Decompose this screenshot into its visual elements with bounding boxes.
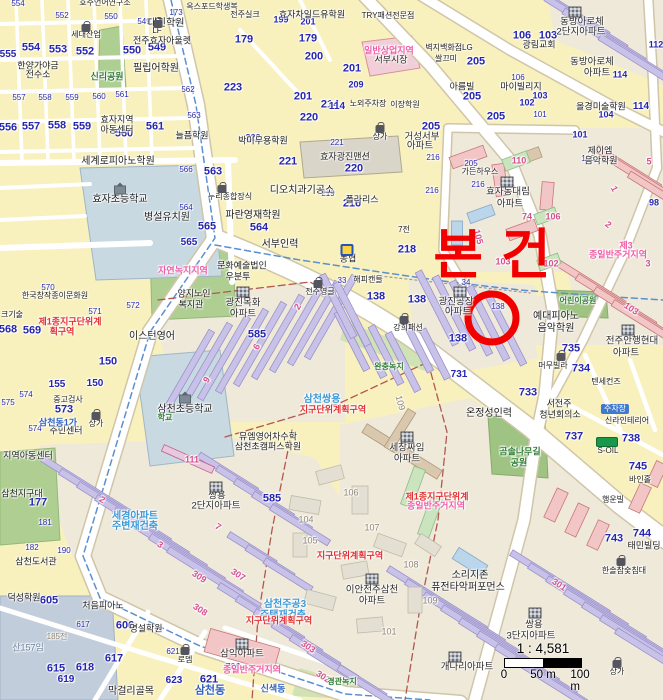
label-num: 223 (224, 83, 242, 94)
label-dong2: 삼천쌍용 (304, 395, 341, 405)
label-num: 738 (622, 434, 640, 445)
label-num: 209 (348, 81, 363, 90)
label-poi: 우분투 (226, 273, 251, 282)
label-park: 곰솔나무길 (499, 448, 540, 457)
label-apt: 광진목화 (226, 298, 261, 308)
label-poi: 서전주 (547, 400, 572, 409)
scale-ratio-text: 1 : 4,581 (501, 641, 585, 656)
label-num: 221 (279, 157, 297, 168)
scale-bar (504, 658, 582, 668)
label-nums: 561 (115, 91, 128, 99)
label-poi: 퓨전타악퍼포먼스 (431, 583, 505, 593)
label-zpink: 자연녹지지역 (158, 267, 208, 276)
label-num: 101 (572, 131, 587, 140)
label-nums: 554 (11, 0, 24, 8)
shop-icon (613, 660, 622, 668)
label-num: 102 (519, 99, 534, 108)
label-apt: 이안전주삼천 (346, 585, 398, 595)
label-poi: 행운빌 (602, 496, 624, 504)
label-pnum: 106 (545, 213, 560, 222)
label-park: 완충녹지 (374, 363, 403, 371)
label-poi: 바인홀 (629, 476, 651, 484)
soil-gas-icon (596, 437, 618, 447)
label-poi: 지역아동센터 (3, 452, 53, 461)
label-num: 605 (40, 596, 58, 607)
label-pnum: 1 (609, 185, 619, 194)
label-dong: 삼천동1가 (39, 419, 77, 428)
label-apt: 동방아로체 (570, 57, 614, 67)
label-poi: 효자지역 (100, 116, 133, 125)
shop-icon (218, 185, 227, 193)
label-zpink: 종일반주거지역 (589, 251, 647, 260)
label-num: 559 (73, 122, 91, 133)
label-zred: 지구단위계획구역 (317, 552, 383, 561)
label-num: 114 (329, 102, 345, 112)
label-nums: 559 (65, 94, 78, 102)
label-apt: 아파트 (359, 596, 385, 606)
label-apt: 3단지아파트 (507, 631, 556, 641)
label-poi: 노외주차장 (350, 100, 387, 108)
label-num: 569 (23, 326, 41, 337)
label-zpink: 종일반주거지역 (223, 666, 281, 675)
label-num: 205 (487, 112, 505, 123)
label-poi: 제이엠 (588, 147, 613, 156)
label-num: 218 (398, 245, 416, 256)
label-apt: 아파트 (613, 348, 639, 358)
nonghyup-icon (341, 244, 354, 256)
scale-tick-50: 50 m (530, 669, 556, 681)
label-apt: 전주안행현대 (606, 336, 658, 346)
label-park: 학교 (158, 414, 173, 422)
label-nums: 566 (179, 166, 192, 174)
label-poi: 크기술 (1, 311, 23, 319)
label-poi: 전주효자아울렛 (133, 37, 191, 46)
label-num: 177 (29, 498, 47, 509)
school-icon (179, 395, 191, 404)
label-nums: 181 (38, 519, 51, 527)
label-poi: 한솔참숯침대 (602, 567, 646, 575)
label-poi: 텐세컨즈 (591, 378, 620, 386)
label-num: 220 (345, 164, 363, 175)
label-nums: 575 (1, 399, 14, 407)
label-pnum: 308 (191, 602, 209, 618)
label-num: 737 (565, 432, 583, 443)
label-num: 557 (22, 122, 40, 133)
label-num: 220 (300, 113, 318, 124)
label-apt: 아파트 (394, 454, 420, 464)
label-apt: 2단지아파트 (192, 501, 241, 511)
label-park: 어린이공원 (560, 297, 597, 305)
apartment-icon (622, 325, 635, 336)
label-mt: 산157임 (12, 644, 44, 653)
label-num: 98 (649, 199, 659, 208)
label-nums: 550 (104, 13, 117, 21)
label-num: 179 (299, 34, 317, 45)
label-zred: 지구단위계획구역 (246, 617, 312, 626)
label-poi: 호주언어연구소 (79, 0, 131, 7)
label-poi: 뮤엠영어차수학 (239, 433, 297, 442)
label-nums: 552 (55, 12, 68, 20)
label-num: 743 (605, 534, 623, 545)
label-nums: 574 (19, 391, 32, 399)
label-num: 585 (263, 494, 281, 505)
label-num: 563 (204, 167, 222, 178)
label-poi: 서부인력 (262, 240, 299, 250)
label-zred: 제1종지구단위계 (406, 493, 469, 502)
label-dong2: 삼천주공3 (264, 600, 306, 610)
label-poi: 양지노인 (177, 290, 210, 299)
label-poi: 이스턴영어 (129, 332, 175, 342)
label-num: 550 (123, 46, 141, 57)
shop-icon (92, 412, 101, 420)
label-poi: 효자차일드유학원 (279, 11, 345, 20)
label-nums: 221 (330, 139, 343, 147)
label-nums: 138 (491, 303, 504, 311)
label-num: 114 (613, 71, 628, 80)
label-pnum: 2 (97, 495, 106, 505)
label-num: 585 (248, 330, 266, 341)
label-poi: 벽지백화점LG (425, 44, 472, 52)
label-pnum: 2 (603, 220, 613, 230)
label-poi: S-OIL (598, 447, 619, 455)
label-poi: 전주실크 (230, 11, 259, 19)
label-dong2: 주변재건축 (112, 522, 158, 532)
label-num: 150 (87, 379, 104, 389)
label-pnum: 74 (522, 213, 532, 222)
label-zred: 지구단위계획구역 (300, 406, 366, 415)
label-nums: 572 (126, 302, 139, 310)
label-gnum: 104 (298, 516, 313, 525)
label-poi: 온정성인력 (466, 409, 512, 419)
shop-icon (557, 353, 566, 361)
label-poi: 신라인테리어 (605, 417, 649, 425)
label-zred: 제1종지구단위계 (39, 318, 102, 327)
label-pnum: 7 (213, 522, 222, 532)
label-gnum: 101 (381, 628, 396, 637)
label-apt: 아파트 (407, 141, 433, 151)
label-gnum: 109 (422, 597, 437, 606)
label-nums: 33 (338, 277, 347, 285)
label-num: 555 (0, 50, 16, 60)
label-dong: 신색동 (261, 685, 286, 694)
label-chip: 주차장 (601, 404, 629, 414)
label-num: 155 (49, 380, 66, 390)
label-gnum: 108 (403, 561, 418, 570)
apartment-icon (210, 482, 223, 493)
label-poi: 덕성학원 (7, 594, 40, 603)
label-poi: 예대피아노 (533, 312, 579, 322)
label-poi: 전수소 (26, 71, 51, 80)
label-park: 공원 (511, 459, 528, 468)
label-nums: 216 (425, 187, 438, 195)
label-nums: 216 (471, 181, 484, 189)
label-poi: 필립어학원 (133, 64, 179, 74)
label-poi: 음악학원 (538, 324, 575, 334)
label-poi: 청년회의소 (539, 411, 580, 420)
label-apt: 삼익아파트 (220, 649, 264, 659)
label-park: 신리공원 (90, 73, 123, 82)
subject-marker-text: 본건 (415, 228, 568, 282)
label-num: 623 (166, 676, 183, 686)
label-zpink: 종일반주거지역 (407, 502, 465, 511)
label-apt: 효자동대림 (486, 187, 530, 197)
label-nums: 564 (179, 204, 192, 212)
label-poi: LF (152, 27, 161, 35)
apartment-icon (237, 287, 250, 298)
label-gnum: 105 (302, 537, 317, 546)
label-poi: 세계로피아노학원 (81, 157, 155, 167)
label-pnum: 303 (299, 639, 317, 655)
label-poi: 복지관 (179, 301, 204, 310)
label-pnum: 9 (202, 376, 212, 385)
label-pnum: 3 (155, 540, 164, 550)
label-poi: 누리종합장식 (208, 193, 252, 201)
label-park: 경관녹지 (327, 678, 356, 686)
label-num: 565 (181, 238, 198, 248)
label-poi: 병설유치원 (144, 213, 190, 223)
label-poi: 아름빌 (450, 83, 475, 92)
label-num: 617 (105, 654, 123, 665)
shop-icon (82, 24, 91, 32)
label-num: 200 (305, 52, 323, 63)
label-poi: 처음피아노 (82, 602, 123, 611)
label-poi: 태민빌딩 (627, 542, 660, 551)
label-gnum: 109 (394, 395, 407, 412)
label-num: 619 (58, 675, 75, 685)
label-apt: 개나리아파트 (441, 662, 493, 672)
label-num: 733 (519, 388, 537, 399)
apartment-icon (569, 7, 582, 18)
label-num: 205 (467, 57, 485, 68)
map-labels: 5545535525505495555565575585595605615635… (0, 0, 663, 700)
label-poi: 올경미술학원 (576, 103, 626, 112)
shop-icon (181, 647, 190, 655)
label-num: 615 (47, 664, 65, 675)
label-pnum: 103 (622, 301, 640, 317)
label-pnum: 5 (646, 158, 651, 167)
label-poi: 한국창작종이문화원 (22, 292, 88, 300)
label-poi: 막걸리골목 (108, 687, 154, 697)
label-poi: 폴라리스 (345, 196, 378, 205)
label-poi: 파란영재학원 (225, 211, 280, 221)
label-num: 745 (629, 462, 647, 473)
label-poi: 상가 (610, 668, 625, 676)
shop-icon (617, 558, 626, 566)
label-poi: 중고검사 (53, 396, 82, 404)
label-poi: 음악학원 (584, 157, 617, 166)
label-poi: 효자초등학교 (92, 195, 147, 205)
label-num: 103 (532, 92, 547, 101)
label-poi: 소리지존 (452, 571, 489, 581)
label-zpink: 일반상업지역 (364, 47, 414, 56)
label-num: 201 (294, 92, 312, 103)
apartment-icon (449, 652, 462, 663)
label-poi: 쌀끄미 (435, 55, 457, 63)
label-dong: 삼천동 (195, 686, 225, 697)
label-pnum: 307 (229, 567, 247, 583)
label-pnum: 111 (185, 456, 199, 465)
label-apt: 아파트 (230, 309, 256, 319)
apartment-icon (501, 177, 514, 188)
label-poi: 삼천초캠퍼스학원 (235, 443, 301, 452)
label-apt: 세창짜임 (390, 443, 425, 453)
apartment-icon (529, 608, 542, 619)
label-poi: 해피캔들 (353, 276, 382, 284)
map-scale: 1 : 4,581 0 50 m 100 m (497, 641, 597, 683)
label-poi: 상가 (89, 420, 104, 428)
label-num: 558 (48, 121, 66, 132)
label-poi: 주민센터 (49, 427, 82, 436)
label-poi: 이장학원 (390, 101, 419, 109)
label-nums: 562 (181, 86, 194, 94)
label-num: 179 (235, 35, 253, 46)
label-poi: 명설학원 (129, 625, 162, 634)
label-num: 138 (408, 295, 426, 306)
label-pnum: 309 (190, 569, 208, 585)
label-num: 552 (76, 47, 94, 58)
label-apt: 아파트 (445, 307, 471, 317)
label-num: 734 (572, 364, 590, 375)
label-poi: 늘픔학원 (175, 132, 208, 141)
label-gnum: 106 (343, 489, 358, 498)
label-poi: 문화예술법인 (217, 262, 267, 271)
label-num: 114 (633, 102, 649, 112)
scale-tick-0: 0 (501, 669, 507, 681)
label-num: 744 (633, 529, 651, 540)
label-nums: 182 (25, 544, 38, 552)
label-nums: 216 (426, 154, 439, 162)
label-nums: 617 (76, 621, 89, 629)
label-poi: 강희패션 (393, 324, 422, 332)
label-poi: 박미무용학원 (238, 137, 288, 146)
label-pnum: 2 (293, 303, 303, 312)
apartment-icon (454, 287, 467, 298)
label-poi: 가든하우스 (462, 168, 499, 176)
label-poi: 머무빌라 (538, 362, 567, 370)
label-gnum: 185전 (47, 633, 68, 641)
label-poi: 효자광진맨션 (320, 153, 370, 162)
label-poi: 디오치과기공소 (270, 186, 334, 196)
label-nums: 101 (533, 111, 546, 119)
label-pnum: 301 (550, 577, 568, 593)
label-num: 618 (76, 663, 94, 674)
label-num: 556 (0, 123, 17, 134)
label-nums: 571 (88, 308, 101, 316)
label-num: 138 (449, 334, 467, 345)
label-apt: 쌍용 (525, 620, 542, 630)
school-icon (114, 186, 126, 195)
label-apt: 아파트 (584, 68, 610, 78)
label-poi: TRY패션전문점 (362, 12, 415, 20)
label-num: 565 (198, 222, 216, 233)
label-nums: 558 (38, 94, 51, 102)
label-zred: 획구역 (50, 328, 75, 337)
label-num: 554 (22, 43, 40, 54)
scale-tick-100: 100 m (570, 669, 589, 693)
label-num: 104 (598, 111, 613, 120)
shop-icon (400, 316, 409, 324)
label-apt: 2단지아파트 (557, 27, 606, 37)
label-apt: 아파트 (497, 199, 523, 209)
label-num: 568 (0, 325, 17, 336)
label-num: 561 (146, 122, 164, 133)
label-poi: 서부시장 (374, 56, 407, 65)
label-nums: 560 (92, 93, 105, 101)
label-num: 205 (463, 92, 481, 103)
label-nums: 563 (187, 112, 200, 120)
label-num: 150 (99, 357, 117, 368)
label-nums: 173 (169, 9, 182, 17)
label-num: 731 (451, 370, 468, 380)
label-poi: 삼천지구대 (1, 490, 42, 499)
label-num: 112 (649, 41, 663, 50)
label-num: 573 (55, 405, 73, 416)
label-nums: 190 (57, 547, 70, 555)
label-pnum: 110 (512, 157, 527, 166)
label-num: 201 (343, 64, 361, 75)
scale-tick-labels: 0 50 m 100 m (497, 669, 597, 683)
label-poi: 삼천도서관 (15, 558, 56, 567)
label-poi: 광림교회 (522, 41, 555, 50)
shop-icon (314, 280, 323, 288)
label-nums: 557 (12, 94, 25, 102)
label-num: 564 (250, 223, 268, 234)
label-pnum: 3 (645, 260, 650, 269)
label-poi: 세대산업 (71, 31, 100, 39)
label-poi: 로뎀 (178, 656, 193, 664)
label-gnum: 107 (364, 524, 379, 533)
label-poi: 마이빌리지 (500, 83, 541, 92)
label-pnum: 6 (252, 343, 262, 352)
shop-icon (376, 125, 385, 133)
label-poi: 전주영글 (305, 288, 334, 296)
shop-icon (154, 20, 163, 28)
apartment-icon (236, 639, 249, 650)
label-poi: 상가 (373, 133, 388, 141)
cadastral-map: 5545535525505495555565575585595605615635… (0, 0, 663, 700)
apartment-icon (401, 432, 414, 443)
label-poi: 아동센터 (100, 126, 133, 135)
label-poi: 7전 (398, 226, 410, 234)
label-num: 138 (367, 292, 385, 303)
apartment-icon (366, 574, 379, 585)
label-num: 553 (49, 45, 67, 56)
